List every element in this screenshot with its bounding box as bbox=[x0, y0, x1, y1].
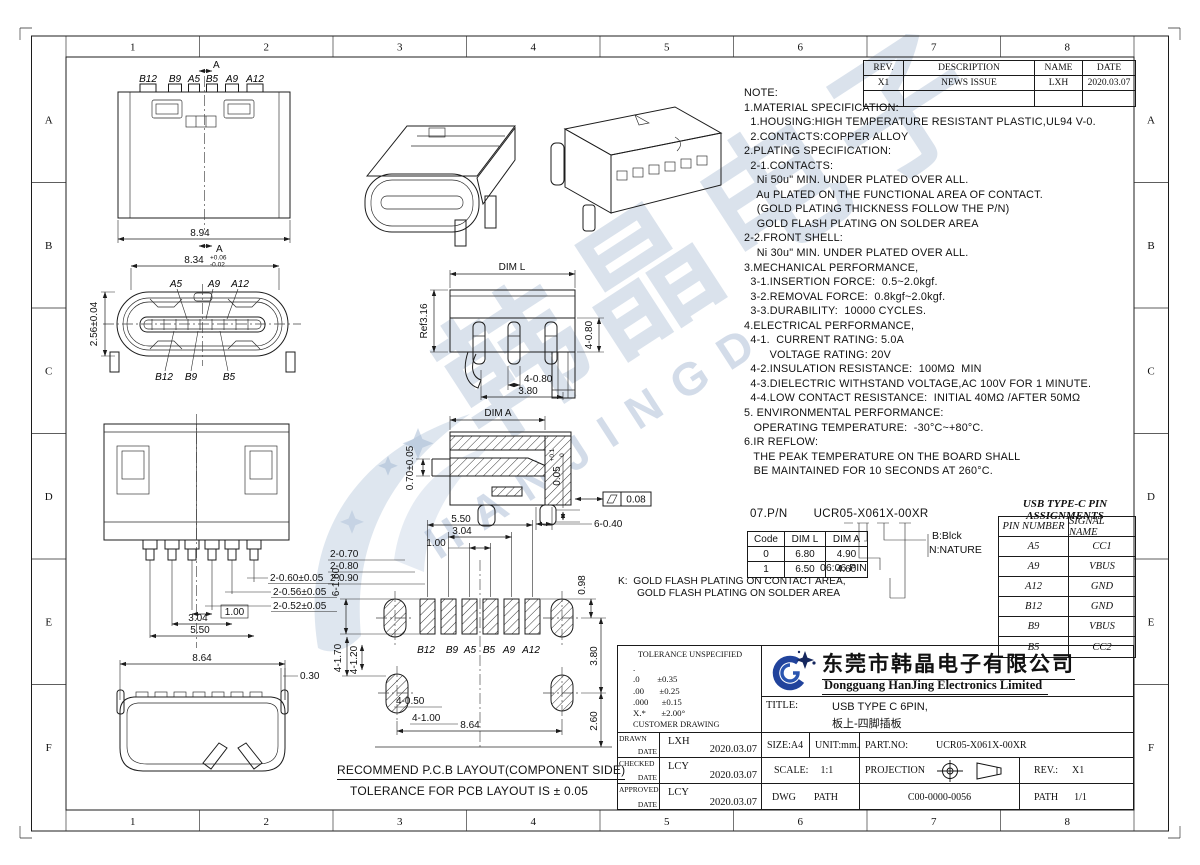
code-header: DIM A bbox=[826, 532, 867, 547]
pin-label: B12 bbox=[155, 372, 173, 383]
dim-label: 4-0.50 bbox=[396, 696, 425, 707]
grid-row-label: A bbox=[45, 115, 53, 127]
approved-label: APPROVED bbox=[619, 785, 659, 794]
dim-label: 8.34 bbox=[184, 255, 204, 266]
grid-col-label: 1 bbox=[130, 42, 136, 54]
color-code-b: B:Blck bbox=[932, 530, 962, 542]
scale-value: 1:1 bbox=[820, 765, 833, 776]
dim-label: 6-0.40 bbox=[594, 519, 623, 530]
grid-row-label: B bbox=[45, 240, 52, 252]
drawing-title-line1: USB TYPE C 6PIN, bbox=[832, 701, 928, 713]
pin-cell: VBUS bbox=[1069, 617, 1135, 637]
rev-header: DATE bbox=[1083, 61, 1135, 76]
sheet-label: PATH bbox=[1034, 792, 1058, 803]
dim-label: 1.00 bbox=[426, 538, 446, 549]
scale-cell: SCALE: 1:1 bbox=[762, 758, 860, 784]
rev-header: NAME bbox=[1035, 61, 1083, 76]
drawn-value-cell: LXH 2020.03.07 bbox=[660, 733, 762, 758]
dim-label: 0.98 bbox=[577, 575, 588, 595]
projection-label: PROJECTION bbox=[865, 765, 925, 776]
unit-cell: UNIT:mm. bbox=[810, 733, 860, 758]
grid-col-label: 3 bbox=[397, 816, 403, 828]
dim-label: 0.30 bbox=[300, 671, 320, 682]
dim-tol-label: +0.1 bbox=[549, 448, 556, 461]
sheet-value: 1/1 bbox=[1074, 792, 1087, 803]
k-plating-note-2: GOLD FLASH PLATING ON SOLDER AREA bbox=[637, 588, 840, 601]
pin-label: B9 bbox=[185, 372, 198, 383]
dim-label: 1.00 bbox=[225, 607, 245, 618]
part-no-cell: PART.NO: UCR05-X061X-00XR bbox=[860, 733, 1134, 758]
pin-label: A5 bbox=[169, 279, 183, 290]
dim-label: 4-1.20 bbox=[349, 645, 360, 674]
pn-value: UCR05-X061X-00XR bbox=[814, 508, 929, 520]
grid-row-label: D bbox=[45, 491, 53, 503]
dim-label: 3.80 bbox=[589, 646, 600, 666]
grid-row-label: E bbox=[45, 617, 52, 629]
dim-tol-label: +0.06 bbox=[210, 255, 227, 262]
grid-row-label: D bbox=[1147, 491, 1155, 503]
pin-th: SIGNAL NAME bbox=[1069, 517, 1135, 537]
dim-label: 2-0.52±0.05 bbox=[273, 601, 327, 612]
pin-label: A5 bbox=[187, 74, 201, 85]
pin-label: A9 bbox=[207, 279, 221, 290]
pad-label: A12 bbox=[521, 645, 540, 656]
dim-label: 8.64 bbox=[460, 720, 480, 731]
grid-col-label: 5 bbox=[664, 816, 670, 828]
specification-notes: NOTE: 1.MATERIAL SPECIFICATION: 1.HOUSIN… bbox=[744, 86, 1160, 479]
tolerance-footer: CUSTOMER DRAWING bbox=[633, 720, 720, 729]
pad-label: B12 bbox=[417, 645, 435, 656]
date-label: DATE bbox=[638, 800, 657, 809]
size-cell: SIZE:A4 bbox=[762, 733, 810, 758]
grid-row-label: F bbox=[1148, 742, 1154, 754]
dim-label: 5.50 bbox=[190, 625, 210, 636]
unit-value: UNIT:mm. bbox=[815, 740, 859, 751]
dwg-label: DWG bbox=[772, 792, 796, 803]
grid-col-label: 8 bbox=[1064, 816, 1070, 828]
dim-label: 4-1.00 bbox=[412, 713, 441, 724]
grid-col-label: 8 bbox=[1064, 42, 1070, 54]
pad-label: B5 bbox=[483, 645, 496, 656]
grid-col-label: 3 bbox=[397, 42, 403, 54]
size-value: SIZE:A4 bbox=[767, 740, 803, 751]
pin-th: PIN NUMBER bbox=[999, 517, 1069, 537]
side-view-dim-l: DIM L Ref3.16 4-0.80 4-0.80 3.80 bbox=[419, 262, 604, 400]
company-name-en: Dongguang HanJing Electronics Limited bbox=[822, 678, 1048, 695]
company-logo bbox=[768, 648, 818, 694]
pin-assignments-table: PIN NUMBER SIGNAL NAME A5 CC1 A9 VBUS A1… bbox=[998, 516, 1136, 658]
dim-label: Ref3.16 bbox=[419, 303, 430, 338]
grid-col-label: 4 bbox=[530, 816, 536, 828]
dwg-path-cell: DWG PATH bbox=[762, 784, 860, 810]
title-label: TITLE: bbox=[766, 700, 798, 711]
drawn-date: 2020.03.07 bbox=[710, 744, 757, 755]
dim-label: 2.60 bbox=[589, 711, 600, 731]
part-no-label: PART.NO: bbox=[865, 740, 908, 751]
dim-label: 6-1.60 bbox=[331, 567, 342, 596]
dim-label: 2.56±0.04 bbox=[89, 301, 100, 346]
dim-label: 2-0.56±0.05 bbox=[273, 587, 327, 598]
pcb-layout-drawing: B12 B9 A5 B5 A9 A12 5.50 3.04 1.00 2-0.7… bbox=[328, 514, 612, 748]
dim-label: 4-0.80 bbox=[584, 320, 595, 349]
title-cell bbox=[762, 697, 1134, 733]
pin-cell: CC1 bbox=[1069, 537, 1135, 557]
pin-label: B9 bbox=[169, 74, 182, 85]
grid-row-label: C bbox=[45, 366, 52, 378]
company-name-cn: 东莞市韩晶电子有限公司 bbox=[822, 648, 1075, 680]
checked-label-cell: CHECKED DATE bbox=[617, 758, 660, 784]
tolerance-heading: TOLERANCE UNSPECIFIED bbox=[625, 650, 755, 659]
code-header: Code bbox=[748, 532, 785, 547]
grid-col-label: 2 bbox=[263, 42, 269, 54]
dim-label: 0.70±0.05 bbox=[405, 445, 416, 490]
pin-cell: A5 bbox=[999, 537, 1069, 557]
code-cell: 0 bbox=[748, 547, 785, 562]
pcb-recommend-note: RECOMMEND P.C.B LAYOUT(COMPONENT SIDE) bbox=[337, 763, 625, 780]
pin-label: B5 bbox=[206, 74, 219, 85]
isometric-view-front bbox=[365, 126, 515, 246]
pin-count-note: 06:06 PIN bbox=[820, 562, 867, 574]
flatness-value: 0.08 bbox=[626, 495, 646, 506]
section-mark-label: A bbox=[216, 244, 223, 255]
dim-label: 2-0.70 bbox=[330, 549, 359, 560]
dim-label: 3.80 bbox=[518, 386, 538, 397]
dwg-number-cell: C00-0000-0056 bbox=[860, 784, 1020, 810]
dim-label: 3.04 bbox=[452, 526, 472, 537]
drawn-label: DRAWN bbox=[619, 734, 647, 743]
pad-label: A5 bbox=[463, 645, 477, 656]
checked-label: CHECKED bbox=[619, 759, 654, 768]
dwg-number: C00-0000-0056 bbox=[908, 792, 971, 803]
top-view-drawing: A A B12 B9 A5 B5 A9 A12 8.94 8.34 +0.06 … bbox=[118, 60, 290, 290]
code-cell: 4.90 bbox=[826, 547, 867, 562]
pin-label: B5 bbox=[223, 372, 236, 383]
part-no-value: UCR05-X061X-00XR bbox=[936, 740, 1027, 751]
pin-cell: GND bbox=[1069, 597, 1135, 617]
grid-col-label: 1 bbox=[130, 816, 136, 828]
scale-label: SCALE: bbox=[774, 765, 808, 776]
pin-label: B12 bbox=[139, 74, 157, 85]
date-label: DATE bbox=[638, 747, 657, 756]
dim-label: DIM L bbox=[499, 262, 526, 273]
approved-name: LCY bbox=[668, 787, 689, 798]
pin-label: A9 bbox=[225, 74, 239, 85]
rev-header: REV. bbox=[864, 61, 904, 76]
pin-cell: B9 bbox=[999, 617, 1069, 637]
grid-row-label: F bbox=[46, 742, 52, 754]
approved-label-cell: APPROVED DATE bbox=[617, 784, 660, 810]
front-view-drawing: A5 A9 A12 B12 B9 B5 2.56±0.04 bbox=[89, 279, 301, 383]
grid-col-label: 7 bbox=[931, 816, 937, 828]
drawn-label-cell: DRAWN DATE bbox=[617, 733, 660, 758]
pin-cell: A9 bbox=[999, 557, 1069, 577]
dim-tol-label: 0 bbox=[559, 453, 566, 457]
checked-value-cell: LCY 2020.03.07 bbox=[660, 758, 762, 784]
dim-label: 8.64 bbox=[192, 653, 212, 664]
profile-view-drawing: 8.64 0.30 bbox=[117, 653, 320, 771]
sheet-cell: PATH 1/1 bbox=[1020, 784, 1134, 810]
grid-col-label: 7 bbox=[931, 42, 937, 54]
rev-label: REV.: bbox=[1034, 765, 1058, 776]
dim-label: 0.05 bbox=[552, 466, 563, 486]
pin-cell: VBUS bbox=[1069, 557, 1135, 577]
dim-label: 2-0.60±0.05 bbox=[270, 573, 324, 584]
section-mark-label: A bbox=[213, 60, 220, 71]
checked-date: 2020.03.07 bbox=[710, 770, 757, 781]
pin-cell: B12 bbox=[999, 597, 1069, 617]
approved-date: 2020.03.07 bbox=[710, 797, 757, 808]
grid-col-label: 6 bbox=[797, 42, 803, 54]
rev-value: X1 bbox=[1072, 765, 1084, 776]
pin-label: A12 bbox=[230, 279, 249, 290]
color-code-n: N:NATURE bbox=[929, 544, 982, 556]
pin-cell: GND bbox=[1069, 577, 1135, 597]
dim-label: 5.50 bbox=[451, 514, 471, 525]
pcb-tolerance-note: TOLERANCE FOR PCB LAYOUT IS ± 0.05 bbox=[350, 784, 588, 798]
pad-label: A9 bbox=[502, 645, 516, 656]
section-view-dim-a: 0.70±0.05 DIM A 0.05 +0.1 0 0.08 6-0.40 bbox=[405, 408, 651, 530]
date-label: DATE bbox=[638, 773, 657, 782]
dim-label: 8.94 bbox=[190, 228, 210, 239]
pin-cell: A12 bbox=[999, 577, 1069, 597]
grid-col-label: 6 bbox=[797, 816, 803, 828]
projection-cell: PROJECTION bbox=[860, 758, 1020, 784]
dim-label: DIM A bbox=[484, 408, 512, 419]
rev-cell: REV.: X1 bbox=[1020, 758, 1134, 784]
k-plating-note-1: K: GOLD FLASH PLATING ON CONTACT AREA, bbox=[618, 576, 846, 589]
code-cell: 1 bbox=[748, 562, 785, 577]
grid-col-label: 5 bbox=[664, 42, 670, 54]
dim-tol-label: -0.02 bbox=[210, 262, 225, 269]
rev-header: DESCRIPTION bbox=[904, 61, 1035, 76]
checked-name: LCY bbox=[668, 761, 689, 772]
code-header: DIM L bbox=[785, 532, 826, 547]
dim-label: 3.04 bbox=[188, 613, 208, 624]
drawn-name: LXH bbox=[668, 736, 690, 747]
drawing-title-line2: 板上-四脚插板 bbox=[832, 715, 902, 731]
grid-col-label: 4 bbox=[530, 42, 536, 54]
tolerance-lines: . .0 ±0.35 .00 ±0.25 .000 ±0.15 X.* ±2.0… bbox=[633, 663, 685, 719]
grid-row-label: E bbox=[1148, 617, 1155, 629]
engineering-drawing-page: 韩晶电子 HANJINGD bbox=[0, 0, 1200, 865]
isometric-view-rear bbox=[551, 107, 721, 231]
dim-label: 4-0.80 bbox=[524, 374, 553, 385]
pn-label: 07.P/N bbox=[750, 508, 788, 520]
pin-label: A12 bbox=[245, 74, 264, 85]
code-cell: 6.80 bbox=[785, 547, 826, 562]
bottom-view-drawing: 2-0.60±0.05 2-0.56±0.05 2-0.52±0.05 1.00… bbox=[104, 414, 337, 648]
grid-col-label: 2 bbox=[263, 816, 269, 828]
dim-label: 4-1.70 bbox=[333, 643, 344, 672]
first-angle-projection-icon bbox=[935, 760, 1007, 782]
approved-value-cell: LCY 2020.03.07 bbox=[660, 784, 762, 810]
part-number-line: 07.P/NUCR05-X061X-00XR bbox=[750, 508, 929, 520]
path-label: PATH bbox=[814, 792, 838, 803]
pad-label: B9 bbox=[446, 645, 459, 656]
